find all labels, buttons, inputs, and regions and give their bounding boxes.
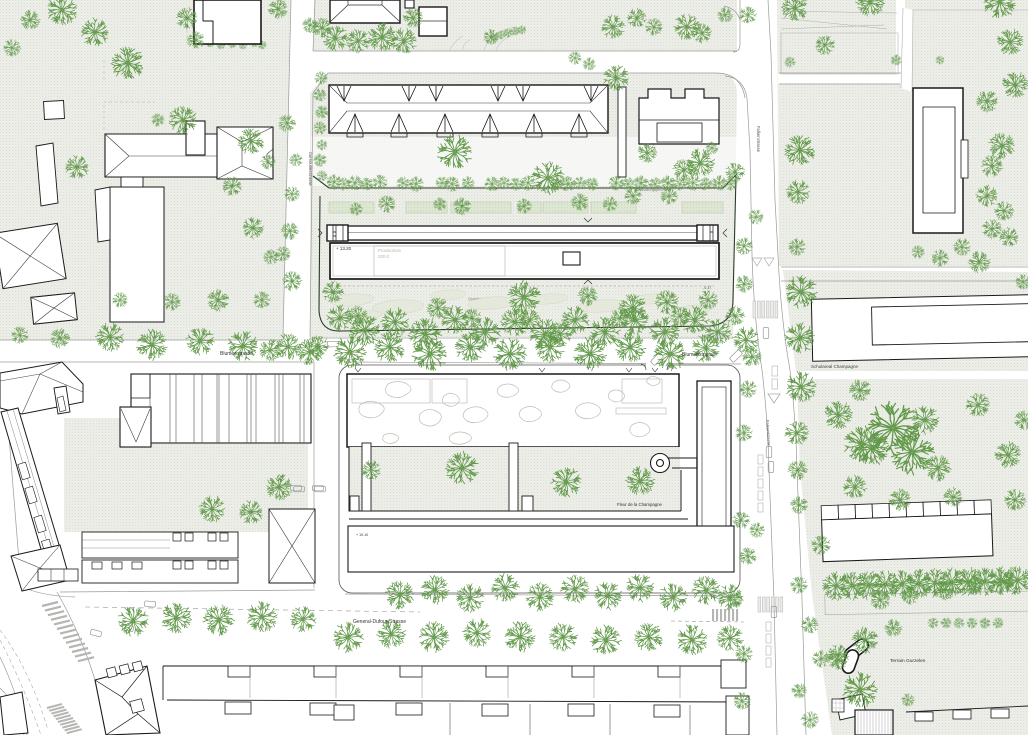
svg-text:General-Dufour-Strasse: General-Dufour-Strasse [353,619,406,625]
svg-text:Fleur de la Champagne: Fleur de la Champagne [617,502,663,507]
svg-text:Blumenstrasse: Blumenstrasse [220,351,253,357]
svg-text:Blumenstrasse: Blumenstrasse [682,352,715,358]
svg-text:Cornouillerstrasse: Cornouillerstrasse [308,152,313,186]
svg-text:+ 19.10: + 19.10 [356,533,368,537]
svg-text:+ 13.20: + 13.20 [336,246,352,251]
svg-text:Schulareal Champagne: Schulareal Champagne [811,364,859,369]
svg-text:200.0: 200.0 [378,254,390,259]
svg-text:Falkenstrasse: Falkenstrasse [756,126,761,153]
svg-text:Terrain Gurzelen: Terrain Gurzelen [890,658,926,664]
svg-text:Provisorium: Provisorium [378,248,402,253]
svg-text:-0.37: -0.37 [703,286,711,290]
